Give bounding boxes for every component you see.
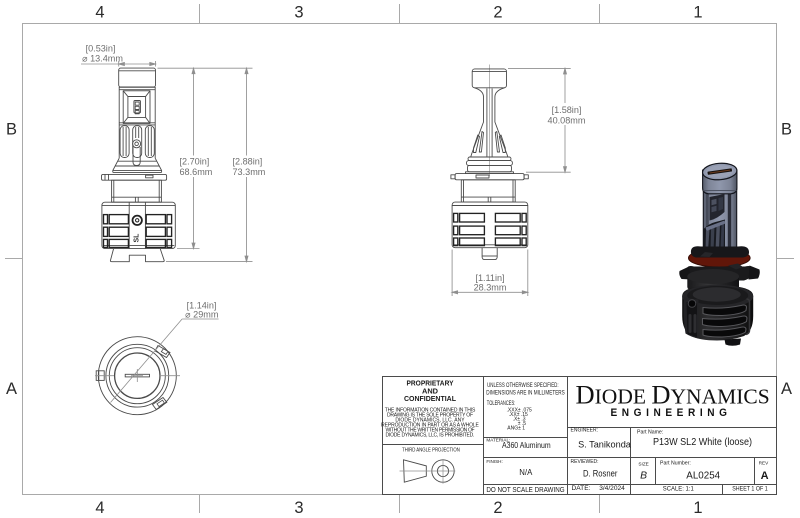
svg-text:4: 4 xyxy=(95,499,104,517)
svg-text:N/A: N/A xyxy=(519,468,533,477)
svg-text:1: 1 xyxy=(693,499,702,517)
svg-text:2: 2 xyxy=(493,499,502,517)
svg-text:3: 3 xyxy=(294,4,303,22)
svg-text:AL0254: AL0254 xyxy=(686,471,720,482)
svg-text:2: 2 xyxy=(493,4,502,22)
svg-text:D. Rosner: D. Rosner xyxy=(583,468,618,479)
svg-text:TOLERANCES:: TOLERANCES: xyxy=(487,401,516,407)
svg-text:DATE:: DATE: xyxy=(572,485,591,492)
svg-text:[0.53in]: [0.53in] xyxy=(86,44,116,54)
svg-text:S. Tanikonda: S. Tanikonda xyxy=(578,439,631,450)
svg-text:FINISH:: FINISH: xyxy=(486,459,502,464)
svg-text:A: A xyxy=(761,470,769,482)
svg-text:40.08mm: 40.08mm xyxy=(548,116,586,126)
svg-text:DIODE DYNAMICS: DIODE DYNAMICS xyxy=(576,380,770,410)
svg-text:3: 3 xyxy=(294,499,303,517)
svg-text:1: 1 xyxy=(693,4,702,22)
svg-text:THIRD ANGLE PROJECTION: THIRD ANGLE PROJECTION xyxy=(402,448,460,454)
svg-text:⌀ 13.4mm: ⌀ 13.4mm xyxy=(82,54,123,64)
svg-text:DO NOT SCALE DRAWING: DO NOT SCALE DRAWING xyxy=(486,487,564,494)
svg-text:B: B xyxy=(640,471,647,482)
svg-text:B: B xyxy=(6,121,17,139)
svg-text:[1.11in]: [1.11in] xyxy=(475,273,504,283)
svg-text:[2.70in]: [2.70in] xyxy=(180,157,210,167)
svg-text:[1.58in]: [1.58in] xyxy=(552,105,582,115)
svg-text:3/4/2024: 3/4/2024 xyxy=(599,485,625,492)
svg-text:REV: REV xyxy=(759,460,770,465)
svg-text:Part Name:: Part Name: xyxy=(637,430,663,436)
svg-text:28.3mm: 28.3mm xyxy=(474,283,507,293)
svg-text:CONFIDENTIAL: CONFIDENTIAL xyxy=(404,394,456,403)
svg-text:SCALE: 1:1: SCALE: 1:1 xyxy=(663,485,694,492)
svg-text:SIZE: SIZE xyxy=(638,461,648,466)
svg-text:A: A xyxy=(781,380,792,398)
svg-text:REVIEWED:: REVIEWED: xyxy=(571,459,599,465)
svg-text:4: 4 xyxy=(95,4,104,22)
svg-text:[2.88in]: [2.88in] xyxy=(233,157,263,167)
svg-text:ANG± 1: ANG± 1 xyxy=(507,426,525,432)
svg-text:B: B xyxy=(781,121,792,139)
svg-text:ENGINEER:: ENGINEER: xyxy=(571,428,599,434)
svg-text:P13W SL2 White (loose): P13W SL2 White (loose) xyxy=(653,437,752,448)
svg-text:DIODE DYNAMICS, LLC, IS PROHIB: DIODE DYNAMICS, LLC, IS PROHIBITED. xyxy=(386,432,475,438)
svg-text:⌀ 29mm: ⌀ 29mm xyxy=(185,310,218,320)
svg-text:DIMENSIONS ARE IN MILLIMETERS: DIMENSIONS ARE IN MILLIMETERS xyxy=(486,391,565,397)
svg-text:SHEET 1 OF 1: SHEET 1 OF 1 xyxy=(732,485,768,492)
svg-text:A: A xyxy=(6,380,17,398)
svg-text:73.3mm: 73.3mm xyxy=(233,167,266,177)
svg-text:A360 Aluminum: A360 Aluminum xyxy=(502,441,551,450)
svg-text:SL: SL xyxy=(134,233,141,243)
svg-text:ENGINEERING: ENGINEERING xyxy=(611,407,732,419)
svg-text:68.6mm: 68.6mm xyxy=(180,167,213,177)
svg-text:UNLESS OTHERWISE SPECIFIED:: UNLESS OTHERWISE SPECIFIED: xyxy=(487,383,559,389)
svg-text:Part Number:: Part Number: xyxy=(660,460,691,466)
